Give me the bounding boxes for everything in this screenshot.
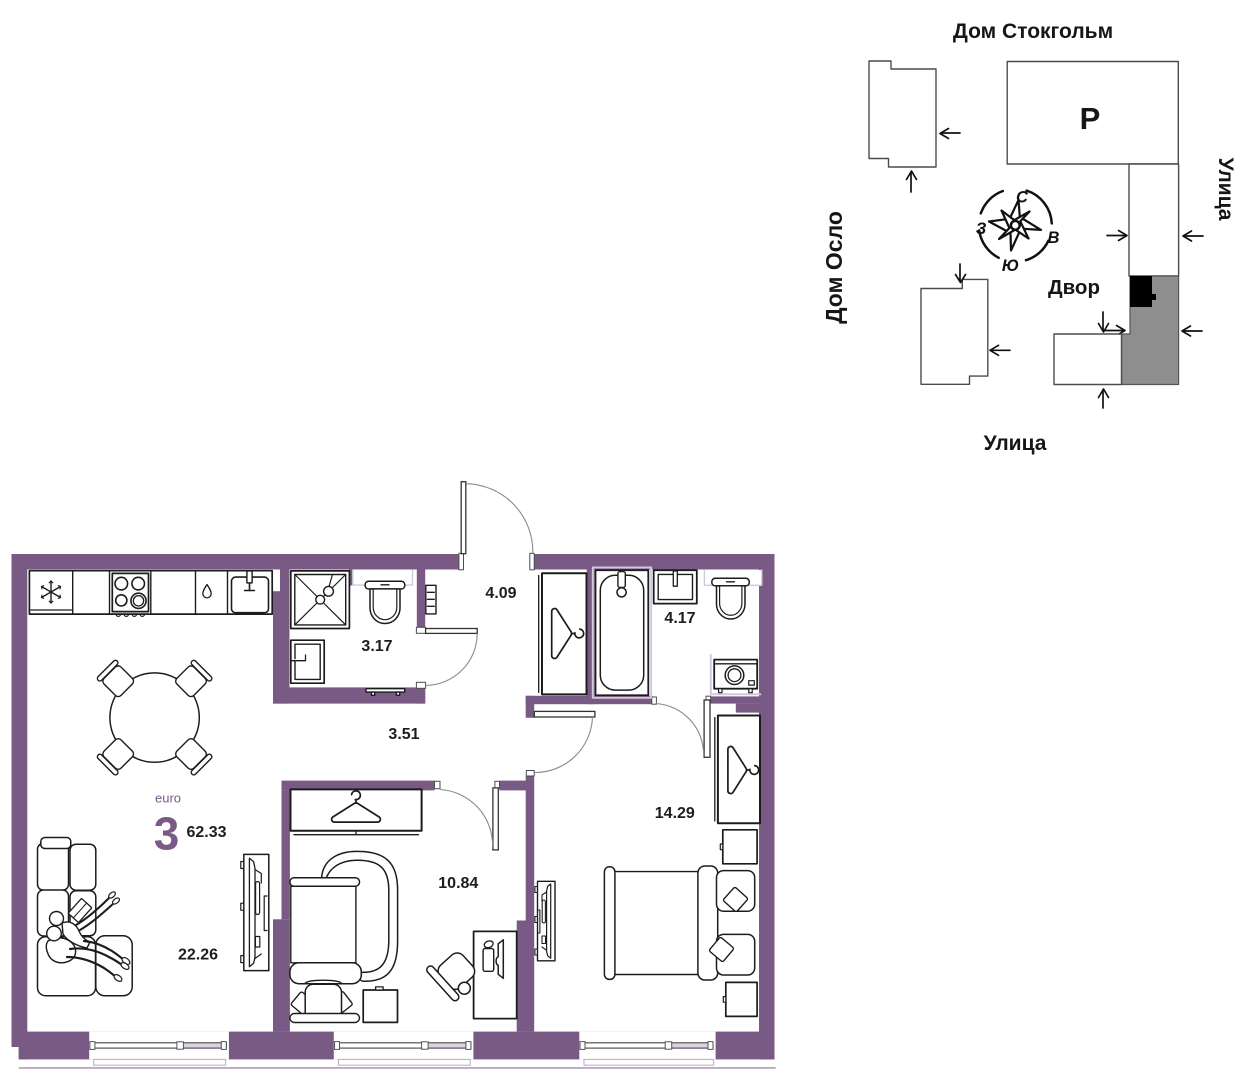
svg-text:З: З — [976, 220, 987, 238]
svg-text:Ю: Ю — [1002, 257, 1019, 275]
svg-text:Улица: Улица — [1214, 158, 1237, 221]
svg-text:Р: Р — [1080, 101, 1101, 136]
svg-text:4.09: 4.09 — [485, 585, 516, 602]
svg-text:3.51: 3.51 — [388, 726, 419, 743]
svg-text:С: С — [1016, 189, 1029, 207]
svg-text:62.33: 62.33 — [187, 824, 227, 841]
svg-text:Дом Осло: Дом Осло — [821, 211, 847, 324]
svg-text:euro: euro — [155, 791, 181, 806]
svg-text:3: 3 — [154, 808, 180, 860]
svg-text:Дом Стокгольм: Дом Стокгольм — [953, 20, 1113, 43]
svg-text:Улица: Улица — [984, 432, 1047, 455]
svg-text:3.17: 3.17 — [361, 638, 392, 655]
svg-text:14.29: 14.29 — [655, 805, 695, 822]
svg-text:4.17: 4.17 — [664, 610, 695, 627]
svg-text:22.26: 22.26 — [178, 947, 218, 964]
svg-text:В: В — [1048, 229, 1060, 247]
svg-text:Двор: Двор — [1048, 276, 1100, 299]
svg-text:10.84: 10.84 — [438, 875, 478, 892]
